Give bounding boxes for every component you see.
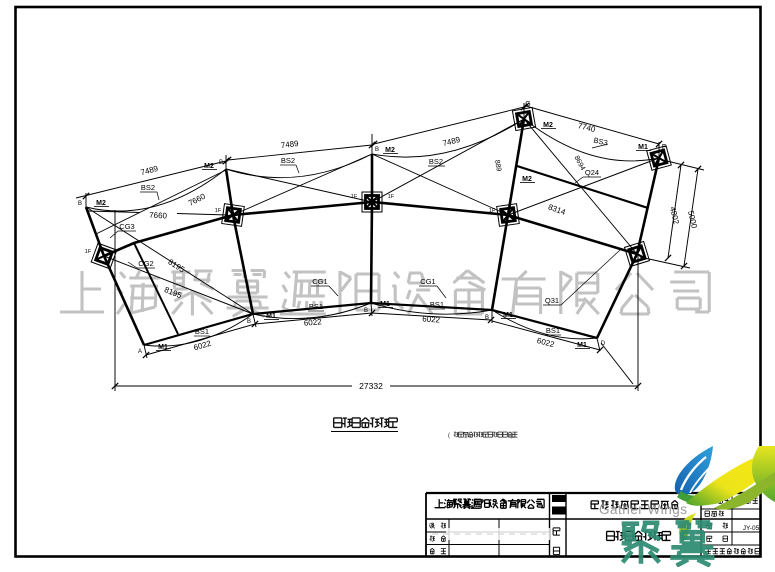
- svg-text:B: B: [375, 147, 379, 153]
- svg-text:CG1: CG1: [420, 277, 435, 286]
- svg-text:CG1: CG1: [312, 277, 327, 286]
- svg-text:JY-05: JY-05: [743, 525, 760, 532]
- svg-text:M1: M1: [638, 144, 648, 151]
- svg-text:1F: 1F: [489, 208, 496, 214]
- svg-text:G: G: [525, 101, 530, 108]
- svg-text:Q31: Q31: [545, 296, 559, 305]
- svg-text:M1: M1: [158, 344, 168, 351]
- svg-text:B: B: [364, 308, 368, 314]
- svg-text:6022: 6022: [304, 317, 323, 328]
- svg-text:B: B: [78, 201, 82, 207]
- svg-text:BS2: BS2: [281, 156, 295, 165]
- svg-text:D: D: [601, 341, 606, 347]
- svg-text:M2: M2: [522, 176, 532, 183]
- svg-text:Gather Wings: Gather Wings: [599, 502, 688, 517]
- svg-text:M2: M2: [385, 147, 395, 154]
- svg-text:1F: 1F: [388, 194, 395, 200]
- svg-text:M2: M2: [204, 163, 214, 170]
- svg-text:B: B: [247, 319, 251, 325]
- svg-text:Q24: Q24: [585, 168, 599, 177]
- svg-text:B: B: [485, 315, 489, 321]
- svg-text:(: (: [448, 433, 450, 439]
- svg-text:B: B: [219, 160, 223, 166]
- svg-text:CG3: CG3: [119, 222, 134, 231]
- svg-text:BS2: BS2: [141, 183, 155, 192]
- svg-text:A: A: [138, 349, 142, 355]
- svg-text:1F: 1F: [215, 208, 222, 214]
- svg-text:M2: M2: [96, 200, 106, 207]
- svg-text:);: );: [511, 433, 515, 439]
- svg-text:F: F: [662, 144, 666, 151]
- svg-text:1F: 1F: [351, 194, 358, 200]
- svg-text:6022: 6022: [422, 314, 441, 324]
- svg-text:M1: M1: [503, 312, 513, 319]
- svg-text:27332: 27332: [359, 381, 383, 391]
- svg-text:M2: M2: [543, 122, 553, 129]
- svg-text:M1: M1: [266, 313, 276, 320]
- svg-text:7660: 7660: [149, 211, 168, 221]
- svg-text:1F: 1F: [85, 249, 92, 255]
- svg-text:M1: M1: [380, 301, 390, 308]
- svg-text:M1: M1: [577, 342, 587, 349]
